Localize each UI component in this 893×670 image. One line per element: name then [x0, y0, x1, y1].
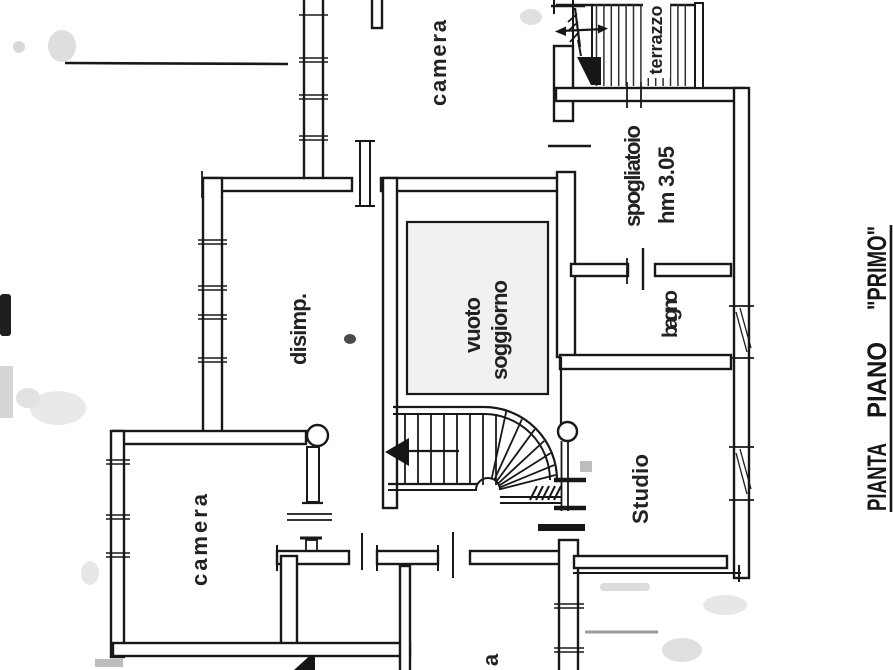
svg-text:hm 3.05: hm 3.05 — [654, 146, 679, 224]
svg-text:a: a — [478, 653, 503, 666]
svg-text:bagno: bagno — [659, 290, 682, 338]
svg-text:"PRIMO": "PRIMO" — [862, 226, 892, 310]
svg-text:Studio: Studio — [628, 454, 653, 524]
svg-text:spogliatoio: spogliatoio — [620, 125, 645, 227]
svg-text:soggiorno: soggiorno — [487, 280, 512, 380]
svg-text:terrazzo: terrazzo — [646, 6, 666, 75]
svg-text:vuoto: vuoto — [460, 297, 485, 353]
svg-text:disimp.: disimp. — [286, 293, 311, 365]
svg-text:PIANO: PIANO — [862, 342, 892, 418]
svg-text:PIANTA: PIANTA — [862, 443, 892, 511]
